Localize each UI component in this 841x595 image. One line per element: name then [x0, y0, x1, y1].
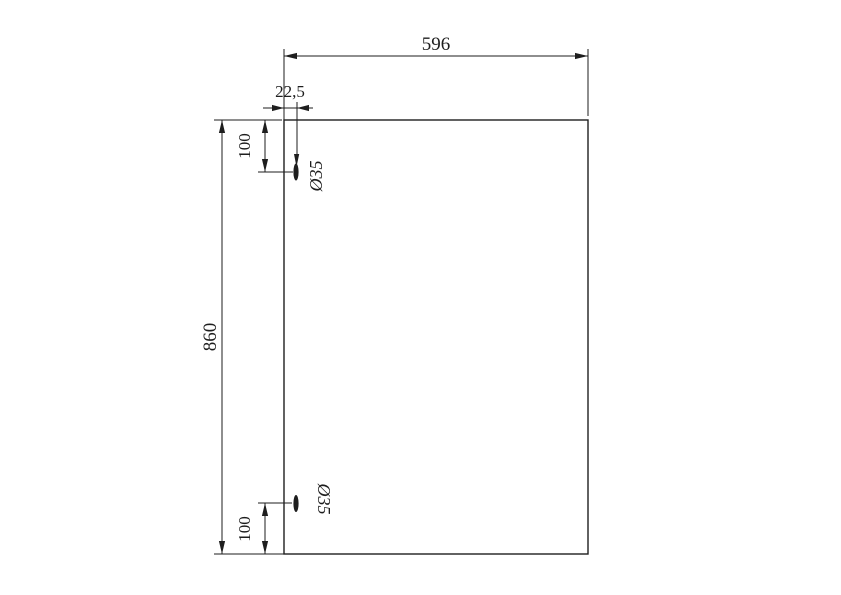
top-hole-diameter-label: Ø35	[306, 161, 326, 193]
arrowhead-up-icon	[262, 503, 268, 516]
height-dim-label: 860	[200, 323, 221, 352]
top-hole-distance-label: 100	[235, 133, 254, 159]
hole-offset-label: 22,5	[275, 82, 305, 101]
arrowhead-right-icon	[575, 53, 588, 59]
technical-drawing: 596 860 22,5 100	[0, 0, 841, 595]
arrowhead-up-icon	[219, 120, 225, 133]
width-dim-label: 596	[422, 34, 451, 55]
hole-mark	[293, 164, 298, 181]
bottom-hole-diameter-label: Ø35	[314, 483, 334, 515]
arrowhead-down-icon	[262, 159, 268, 172]
hole-offset-dimension: 22,5	[263, 82, 313, 167]
arrowhead-down-icon	[219, 541, 225, 554]
arrowhead-left-icon	[284, 53, 297, 59]
hole-mark	[293, 495, 298, 512]
drawing-canvas: 596 860 22,5 100	[0, 0, 841, 595]
top-hole: Ø35	[293, 161, 326, 193]
bottom-hole-distance-label: 100	[235, 516, 254, 542]
width-dimension: 596	[284, 34, 588, 120]
height-dimension: 860	[200, 120, 284, 554]
arrowhead-left-icon	[297, 105, 309, 111]
arrowhead-right-icon	[272, 105, 284, 111]
arrowhead-down-icon	[262, 541, 268, 554]
arrowhead-up-icon	[262, 120, 268, 133]
bottom-hole: Ø35	[293, 483, 334, 515]
